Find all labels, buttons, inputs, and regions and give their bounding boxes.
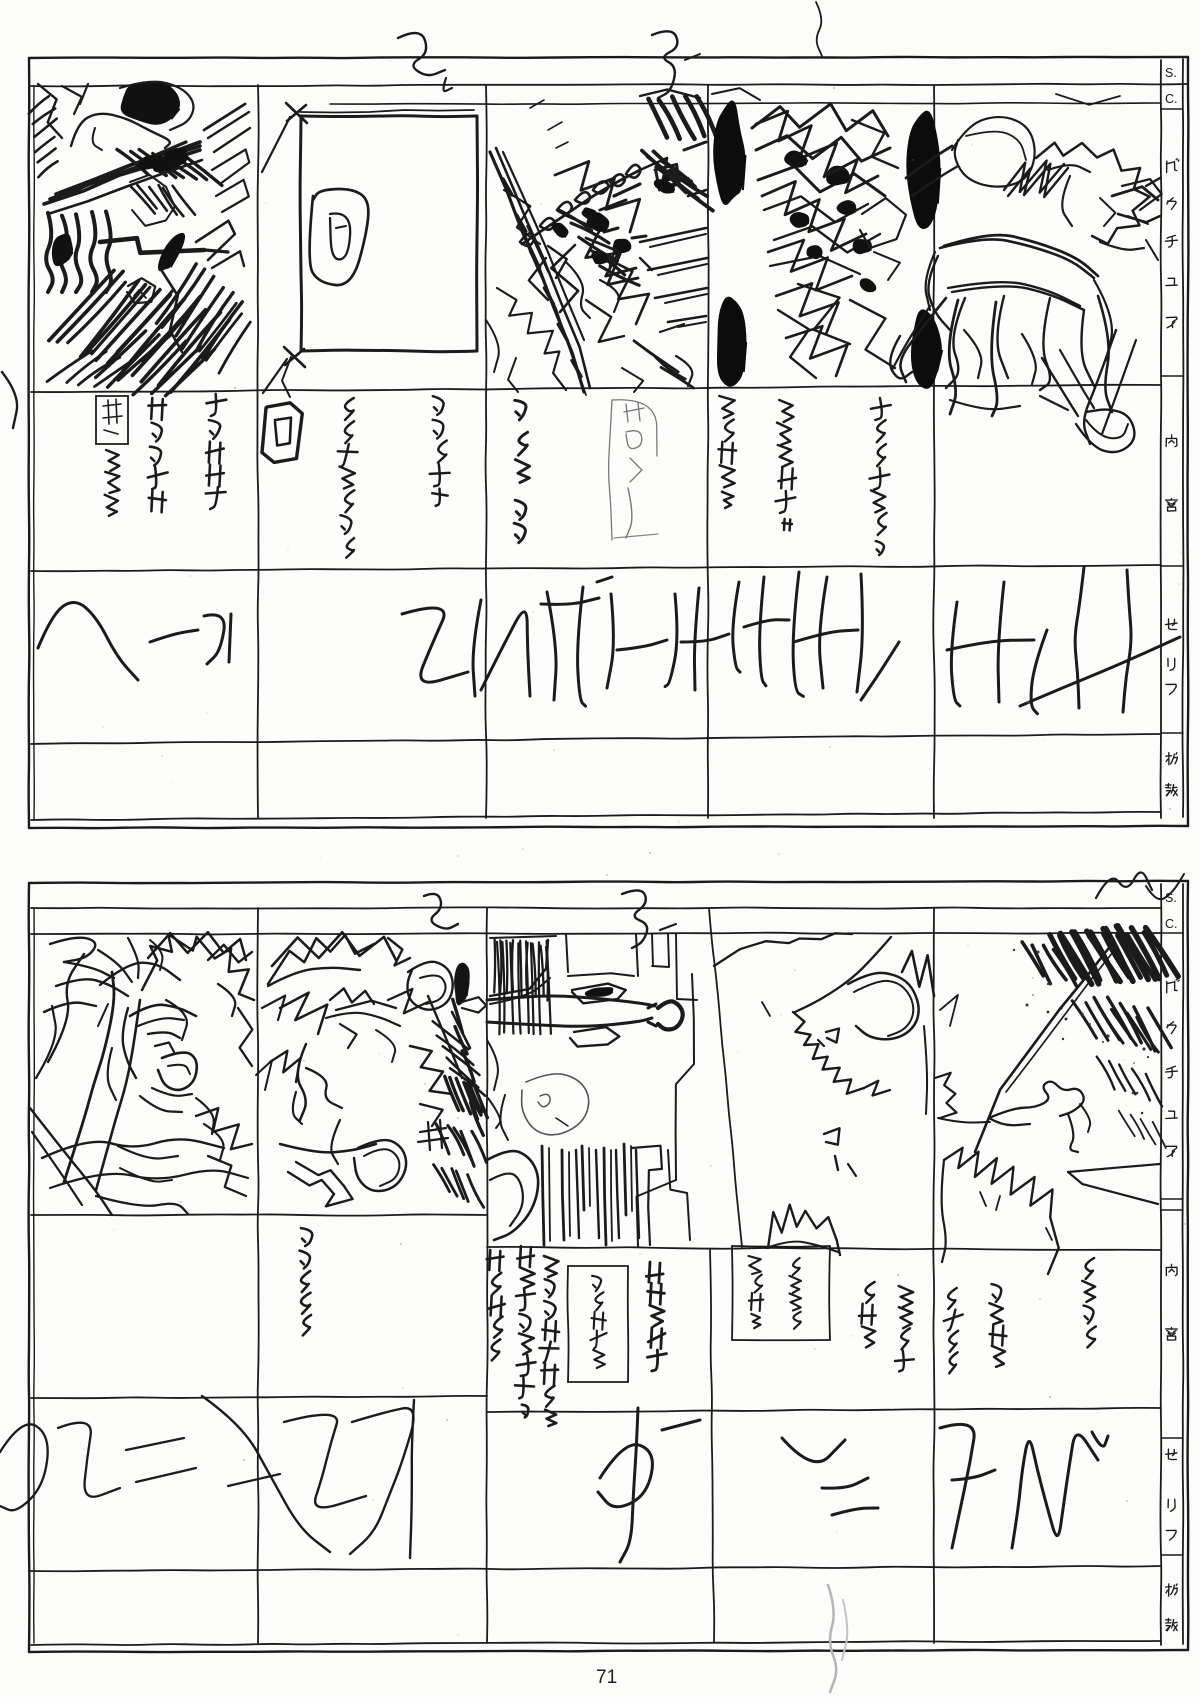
svg-text:C.: C. — [1165, 917, 1178, 931]
svg-text:C.: C. — [1165, 92, 1178, 106]
svg-text:71: 71 — [596, 1667, 617, 1688]
svg-text:S.: S. — [1165, 66, 1177, 80]
